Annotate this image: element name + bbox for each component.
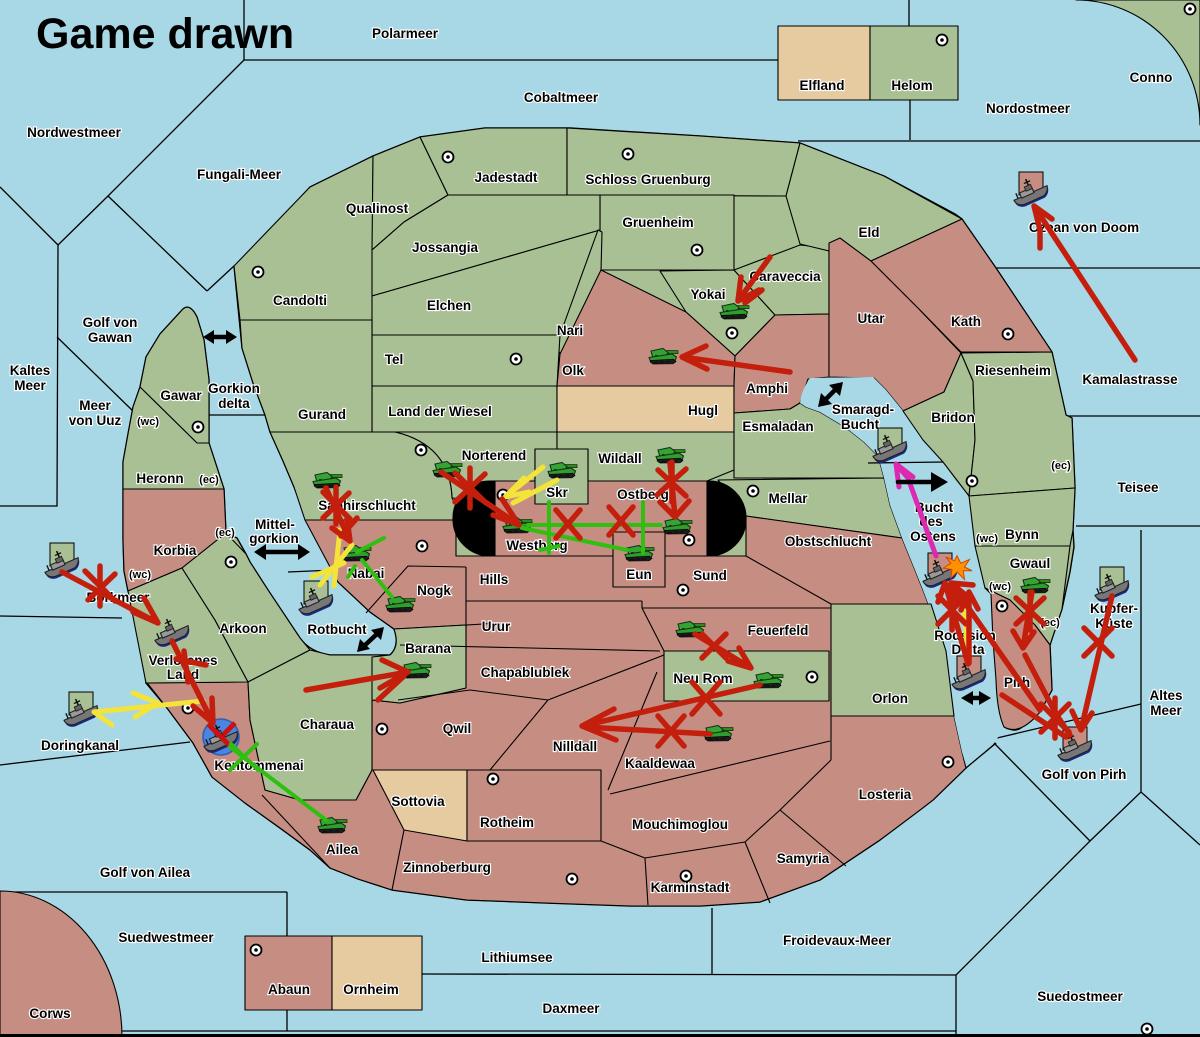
svg-text:Eld: Eld: [858, 225, 879, 240]
svg-text:Hills: Hills: [480, 572, 509, 587]
svg-text:Jadestadt: Jadestadt: [474, 170, 538, 185]
svg-text:Nordwestmeer: Nordwestmeer: [27, 125, 122, 140]
svg-text:Bynn: Bynn: [1005, 527, 1039, 542]
svg-text:Kaaldewaa: Kaaldewaa: [625, 756, 695, 771]
svg-text:Nilldall: Nilldall: [553, 739, 597, 754]
svg-text:Game drawn: Game drawn: [36, 10, 294, 58]
svg-text:Nogk: Nogk: [417, 583, 451, 598]
svg-text:Gawan: Gawan: [88, 330, 132, 345]
svg-text:Sund: Sund: [693, 568, 727, 583]
svg-text:Ailea: Ailea: [326, 842, 359, 857]
svg-text:Barana: Barana: [405, 641, 451, 656]
svg-text:Lithiumsee: Lithiumsee: [481, 950, 553, 965]
svg-text:Tel: Tel: [385, 352, 404, 367]
svg-text:Skr: Skr: [546, 485, 569, 500]
svg-text:Gorkion: Gorkion: [208, 381, 260, 396]
svg-text:Land der Wiesel: Land der Wiesel: [388, 404, 491, 419]
svg-text:Karminstadt: Karminstadt: [651, 880, 730, 895]
svg-text:Eun: Eun: [626, 567, 652, 582]
svg-text:Elfland: Elfland: [799, 78, 844, 93]
svg-text:Mellar: Mellar: [768, 491, 808, 506]
svg-text:(wc): (wc): [976, 533, 998, 545]
svg-text:Olk: Olk: [562, 363, 584, 378]
svg-text:Elchen: Elchen: [427, 298, 471, 313]
svg-text:gorkion: gorkion: [249, 531, 299, 546]
svg-text:Froidevaux-Meer: Froidevaux-Meer: [783, 933, 892, 948]
svg-text:Meer: Meer: [14, 378, 46, 393]
svg-text:Zinnoberburg: Zinnoberburg: [403, 860, 491, 875]
svg-text:Orlon: Orlon: [872, 691, 908, 706]
svg-text:Obstschlucht: Obstschlucht: [785, 534, 872, 549]
svg-text:Cobaltmeer: Cobaltmeer: [524, 90, 599, 105]
svg-text:Arkoon: Arkoon: [219, 621, 266, 636]
svg-text:Esmaladan: Esmaladan: [742, 419, 813, 434]
svg-text:Candolti: Candolti: [273, 293, 327, 308]
svg-text:Helom: Helom: [891, 78, 932, 93]
svg-text:Gurand: Gurand: [298, 407, 346, 422]
svg-text:Korbia: Korbia: [154, 543, 197, 558]
svg-text:Jossangia: Jossangia: [412, 240, 479, 255]
svg-text:Yokai: Yokai: [690, 287, 725, 302]
svg-text:Samyria: Samyria: [777, 851, 830, 866]
svg-text:Amphi: Amphi: [746, 381, 788, 396]
svg-text:Rotbucht: Rotbucht: [307, 622, 367, 637]
svg-text:Sottovia: Sottovia: [391, 794, 445, 809]
svg-text:von Uuz: von Uuz: [69, 413, 122, 428]
svg-text:Chapablublek: Chapablublek: [481, 665, 570, 680]
svg-text:Gawar: Gawar: [160, 388, 202, 403]
svg-text:Teisee: Teisee: [1117, 480, 1159, 495]
svg-text:Kupfer-: Kupfer-: [1090, 601, 1138, 616]
svg-text:Feuerfeld: Feuerfeld: [748, 623, 809, 638]
svg-text:Bridon: Bridon: [931, 410, 975, 425]
svg-text:Golf von Ailea: Golf von Ailea: [100, 865, 191, 880]
svg-text:(wc): (wc): [989, 581, 1011, 593]
svg-text:Mittel-: Mittel-: [255, 517, 295, 532]
svg-text:Nordostmeer: Nordostmeer: [986, 101, 1071, 116]
svg-text:Smaragd-: Smaragd-: [832, 402, 894, 417]
svg-text:Heronn: Heronn: [136, 471, 183, 486]
svg-text:Wildall: Wildall: [598, 451, 641, 466]
svg-text:Suedwestmeer: Suedwestmeer: [118, 930, 214, 945]
svg-text:(ec): (ec): [215, 527, 235, 539]
svg-text:Corws: Corws: [29, 1006, 70, 1021]
svg-text:Losteria: Losteria: [859, 787, 912, 802]
svg-text:Golf von Pirh: Golf von Pirh: [1042, 767, 1127, 782]
svg-text:Utar: Utar: [857, 311, 885, 326]
svg-text:Charaua: Charaua: [300, 717, 355, 732]
svg-text:Golf von: Golf von: [83, 315, 138, 330]
svg-text:Schloss Gruenburg: Schloss Gruenburg: [585, 172, 710, 187]
svg-text:Qualinost: Qualinost: [346, 201, 409, 216]
svg-text:Hugl: Hugl: [688, 403, 718, 418]
svg-text:Gruenheim: Gruenheim: [622, 215, 693, 230]
svg-text:Neu Rom: Neu Rom: [673, 671, 732, 686]
svg-text:Meer: Meer: [1150, 703, 1182, 718]
svg-text:Ornheim: Ornheim: [343, 982, 399, 997]
svg-text:Conno: Conno: [1130, 70, 1173, 85]
svg-text:(ec): (ec): [199, 474, 219, 486]
svg-text:Mouchimoglou: Mouchimoglou: [632, 817, 728, 832]
svg-text:Gwaul: Gwaul: [1010, 556, 1051, 571]
svg-text:Urur: Urur: [482, 619, 511, 634]
svg-text:Norterend: Norterend: [462, 448, 527, 463]
svg-text:Daxmeer: Daxmeer: [542, 1001, 600, 1016]
svg-text:delta: delta: [218, 396, 250, 411]
svg-text:(wc): (wc): [137, 416, 159, 428]
svg-text:Doringkanal: Doringkanal: [41, 738, 119, 753]
svg-text:Polarmeer: Polarmeer: [372, 26, 439, 41]
svg-text:Kaltes: Kaltes: [10, 363, 51, 378]
svg-text:Riesenheim: Riesenheim: [975, 363, 1051, 378]
svg-text:Nari: Nari: [557, 323, 583, 338]
svg-text:Rotheim: Rotheim: [480, 815, 534, 830]
svg-text:Meer: Meer: [79, 398, 111, 413]
svg-text:Altes: Altes: [1149, 688, 1182, 703]
svg-text:Kath: Kath: [951, 314, 981, 329]
svg-text:(ec): (ec): [1051, 460, 1071, 472]
svg-text:Qwil: Qwil: [443, 721, 472, 736]
svg-text:Bucht: Bucht: [841, 417, 880, 432]
svg-text:Abaun: Abaun: [268, 982, 310, 997]
svg-text:Fungali-Meer: Fungali-Meer: [197, 167, 282, 182]
svg-text:Kamalastrasse: Kamalastrasse: [1082, 372, 1178, 387]
svg-text:Suedostmeer: Suedostmeer: [1037, 989, 1123, 1004]
svg-text:(wc): (wc): [129, 569, 151, 581]
